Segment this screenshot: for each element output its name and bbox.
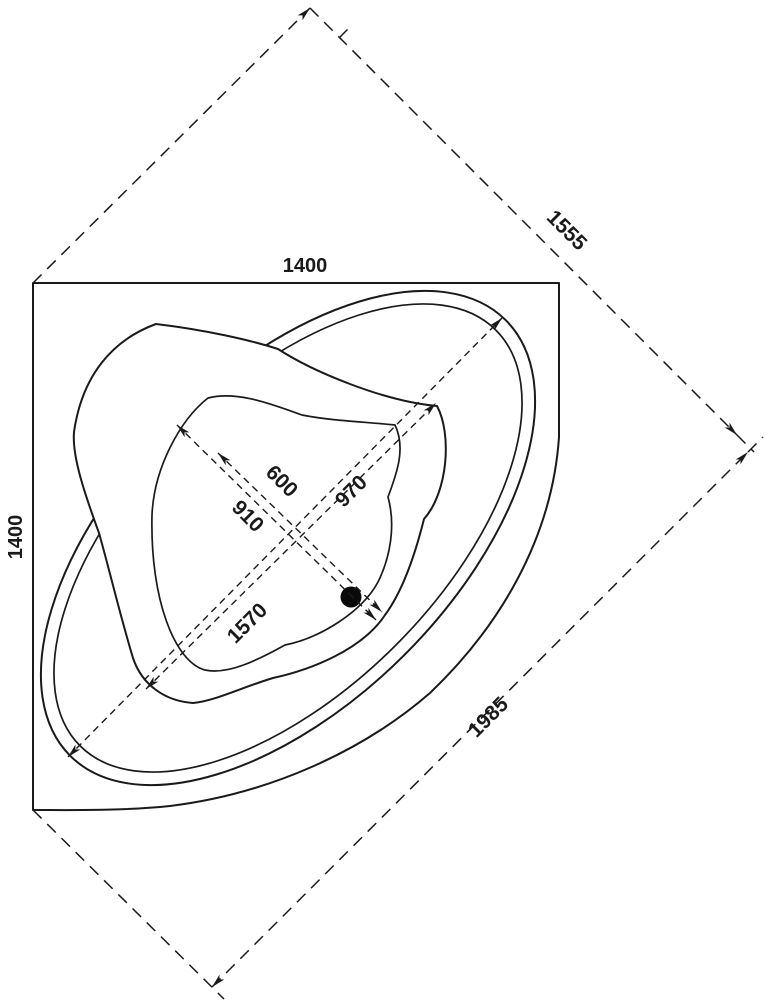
dim-label-top-width: 1400 — [283, 255, 328, 277]
dim-label-side-depth: 1400 — [5, 515, 27, 560]
extension-tick — [339, 27, 350, 38]
dim-label-front-diagonal: 1985 — [464, 693, 514, 743]
dim-label-corner-diagonal: 1555 — [542, 206, 592, 256]
bathtub-technical-drawing: 1400 1400 1555 1985 1570 970 600 910 — [0, 0, 765, 1004]
extension-line-bottom-left — [33, 810, 224, 999]
extension-line-top-left — [33, 8, 310, 283]
technical-drawing-canvas: 1400 1400 1555 1985 1570 970 600 910 — [0, 0, 765, 1004]
dim-line-front-diagonal-overshoot — [748, 437, 763, 452]
